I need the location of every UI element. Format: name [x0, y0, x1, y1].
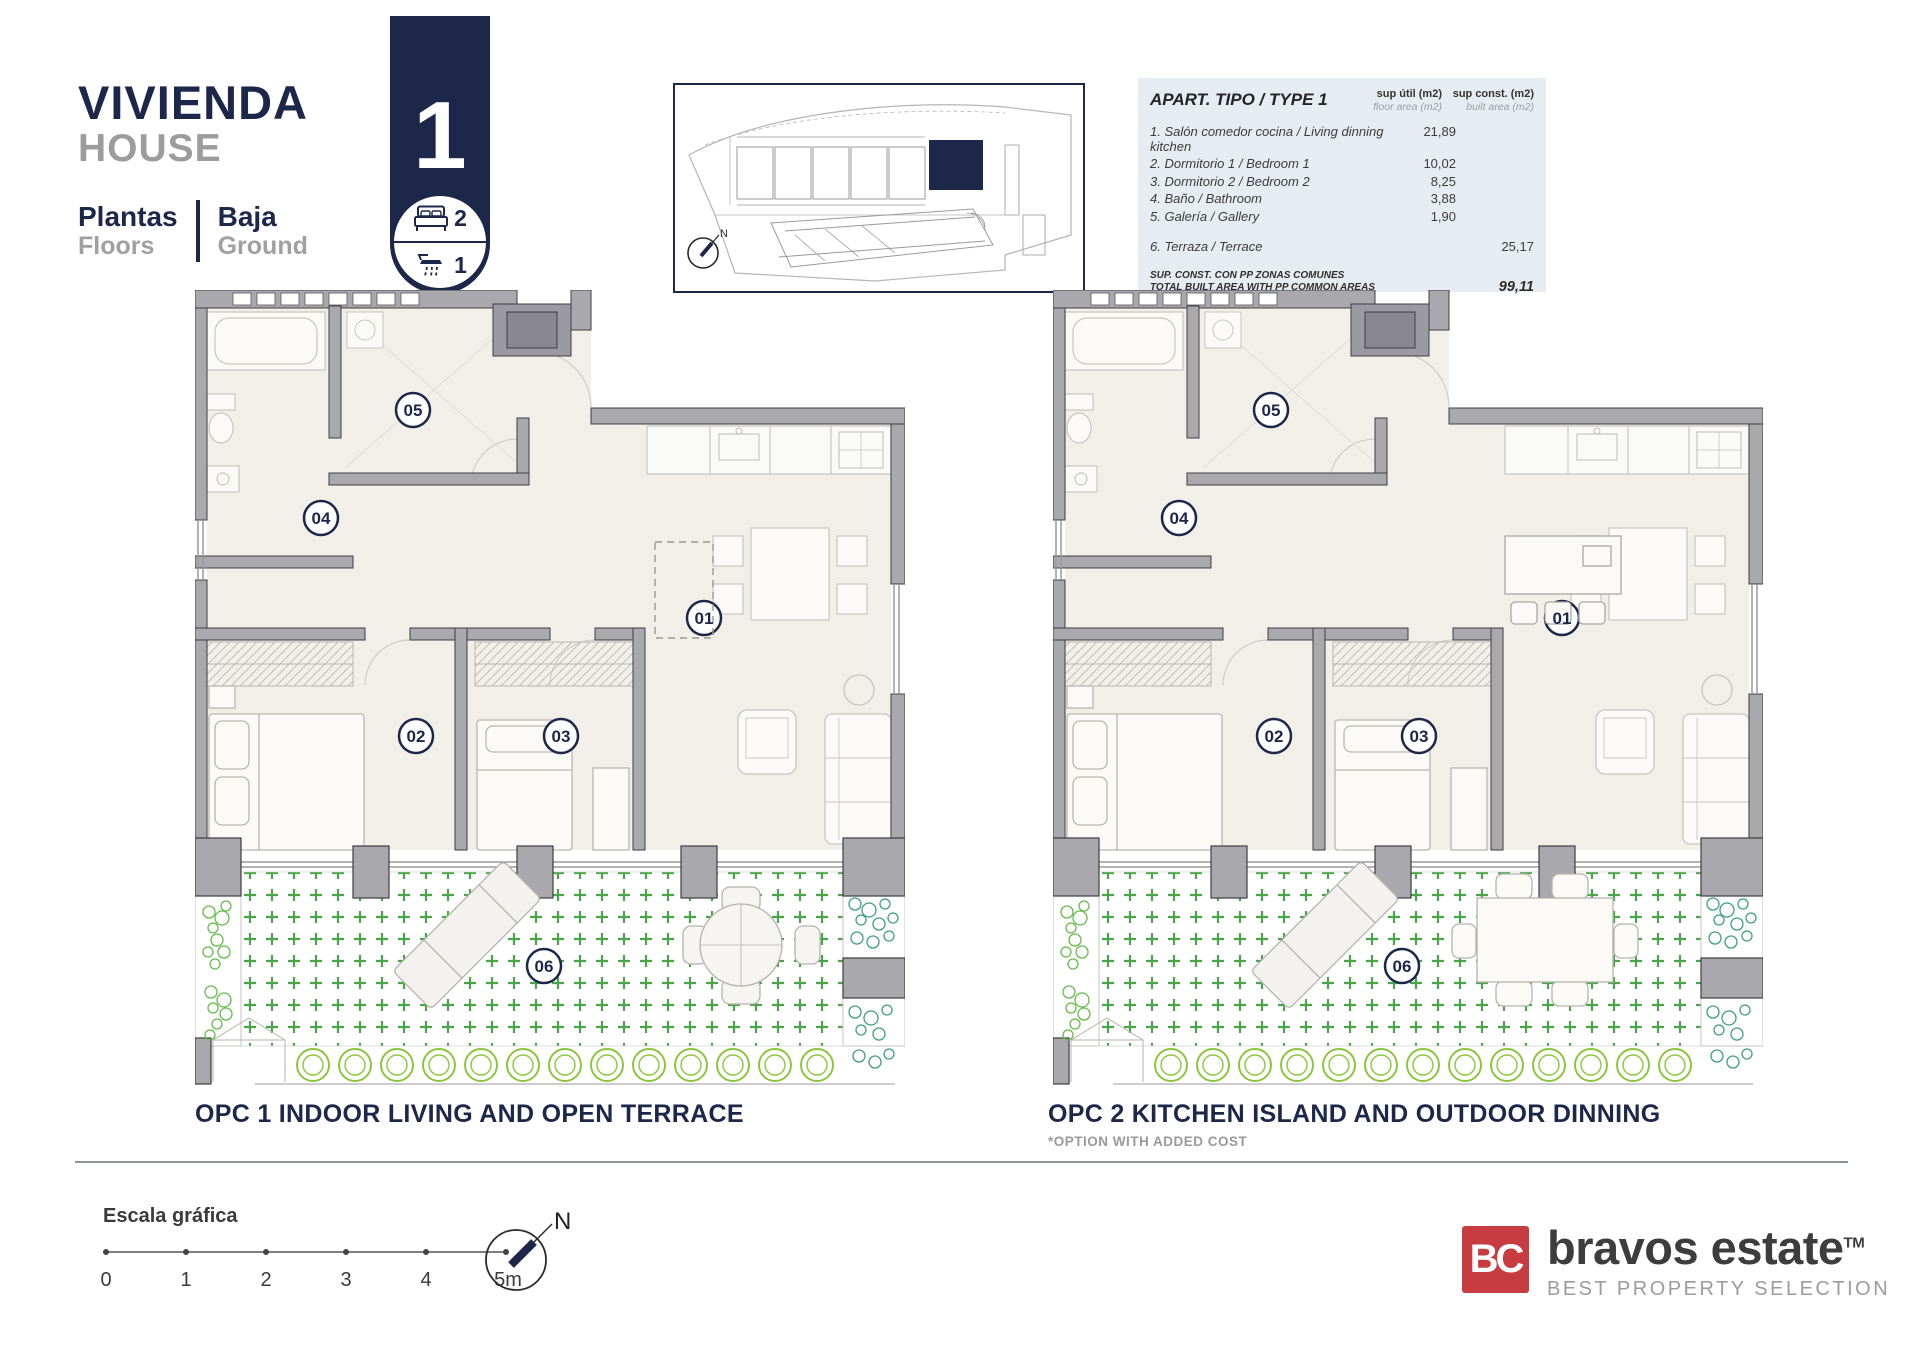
brand-initials: BC	[1470, 1237, 1522, 1282]
brand-logo-text: bravos estateTM BEST PROPERTY SELECTION	[1547, 1226, 1890, 1301]
bathrooms-row: 1	[394, 243, 486, 288]
compass-north-label: N	[554, 1208, 571, 1235]
bed-icon	[413, 205, 449, 233]
page-subtitle: HOUSE	[78, 129, 308, 168]
table-row: 2. Dormitorio 1 / Bedroom 1 10,02	[1150, 156, 1534, 171]
floor-plan-opc2: 01 02 03 04 05 06	[1053, 290, 1763, 1085]
scale-tick-2: 2	[260, 1269, 271, 1291]
page-title: VIVIENDA	[78, 78, 308, 127]
site-key-plan-drawing: N	[675, 85, 1083, 291]
header: VIVIENDA HOUSE Plantas Floors Baja Groun…	[78, 78, 308, 262]
scale-tick-4: 4	[420, 1269, 431, 1291]
floor-plan-opc1-drawing: 01 02 03 04 05 06	[195, 290, 905, 1085]
brand-name: bravos estate	[1547, 1221, 1844, 1274]
bedrooms-row: 2	[394, 196, 486, 243]
floor-value-en: Ground	[218, 232, 308, 261]
room-label-03: 03	[552, 727, 571, 746]
table-row: 3. Dormitorio 2 / Bedroom 2 8,25	[1150, 174, 1534, 189]
room-label-01: 01	[1553, 609, 1572, 628]
table-row: 5. Galería / Gallery 1,90	[1150, 209, 1534, 224]
siteplan-compass-icon: N	[688, 228, 728, 268]
brand-trademark: TM	[1844, 1234, 1865, 1251]
col-floor-area: sup útil (m2) floor area (m2)	[1350, 88, 1442, 114]
highlighted-unit	[929, 140, 983, 190]
brand-tagline: BEST PROPERTY SELECTION	[1547, 1278, 1890, 1301]
room-label-06: 06	[1393, 957, 1412, 976]
area-table-header: APART. TIPO / TYPE 1 sup útil (m2) floor…	[1150, 88, 1534, 114]
floor-value-es: Baja	[218, 202, 308, 233]
brand-logo: BC bravos estateTM BEST PROPERTY SELECTI…	[1462, 1226, 1890, 1301]
floor-value: Baja Ground	[218, 202, 308, 262]
room-label-04: 04	[1170, 509, 1189, 528]
bedrooms-count: 2	[454, 205, 467, 232]
scale-tick-1: 1	[180, 1269, 191, 1291]
area-table: APART. TIPO / TYPE 1 sup útil (m2) floor…	[1138, 78, 1546, 292]
room-label-02: 02	[1265, 727, 1284, 746]
table-row: 4. Baño / Bathroom 3,88	[1150, 191, 1534, 206]
area-table-rows: 1. Salón comedor cocina / Living dinning…	[1150, 124, 1534, 254]
room-label-04: 04	[312, 509, 331, 528]
room-label-02: 02	[407, 727, 426, 746]
scalebar-label: Escala gráfica	[103, 1205, 238, 1228]
footer-divider	[75, 1161, 1848, 1163]
table-row: 6. Terraza / Terrace 25,17	[1150, 239, 1534, 254]
shower-icon	[413, 252, 449, 280]
room-label-05: 05	[1262, 401, 1281, 420]
floor-plan-opc1: 01 02 03 04 05 06	[195, 290, 905, 1085]
floors-label: Plantas Floors	[78, 202, 178, 262]
caption-opc2: OPC 2 KITCHEN ISLAND AND OUTDOOR DINNING	[1048, 1100, 1660, 1129]
brand-logo-mark: BC	[1462, 1226, 1529, 1293]
scale-tick-3: 3	[340, 1269, 351, 1291]
badge-bed-bath-circle: 2 1	[394, 196, 486, 288]
caption-opc1: OPC 1 INDOOR LIVING AND OPEN TERRACE	[195, 1100, 744, 1129]
floors-label-es: Plantas	[78, 202, 178, 233]
table-row: 1. Salón comedor cocina / Living dinning…	[1150, 124, 1534, 154]
page: VIVIENDA HOUSE Plantas Floors Baja Groun…	[0, 0, 1920, 1358]
house-number: 1	[390, 88, 490, 184]
floor-plan-opc2-drawing: 01 02 03 04 05 06	[1053, 290, 1763, 1085]
col-built-area: sup const. (m2) built area (m2)	[1442, 88, 1534, 114]
floors-label-en: Floors	[78, 232, 178, 261]
area-table-title: APART. TIPO / TYPE 1	[1150, 88, 1350, 114]
caption-opc2-note: *OPTION WITH ADDED COST	[1048, 1134, 1247, 1149]
compass-icon: N	[468, 1205, 578, 1315]
room-label-01: 01	[695, 609, 714, 628]
scale-tick-0: 0	[100, 1269, 111, 1291]
site-key-plan: N	[673, 83, 1085, 293]
room-label-03: 03	[1410, 727, 1429, 746]
bathrooms-count: 1	[454, 252, 467, 279]
room-label-06: 06	[535, 957, 554, 976]
house-number-badge: 1 2	[390, 16, 490, 294]
floors-row: Plantas Floors Baja Ground	[78, 200, 308, 262]
total-label-es: SUP. CONST. CON PP ZONAS COMUNES	[1150, 270, 1456, 283]
room-label-05: 05	[404, 401, 423, 420]
floors-divider	[196, 200, 200, 262]
svg-text:N: N	[720, 228, 728, 240]
